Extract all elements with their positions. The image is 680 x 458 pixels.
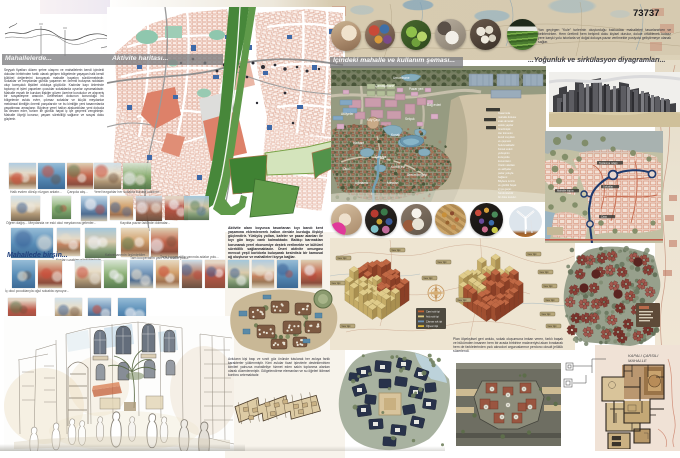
svg-text:Gev tipi: Gev tipi: [546, 298, 555, 302]
svg-text:MAHALLE: MAHALLE: [628, 358, 647, 363]
svg-text:Öğrenci tipi: Öğrenci tipi: [426, 325, 439, 328]
svg-text:Gev tipi: Gev tipi: [392, 248, 401, 252]
svg-text:Sokaklar: Sokaklar: [603, 185, 613, 189]
svg-text:Cami sok tipi: Cami sok tipi: [426, 311, 440, 314]
svg-text:Gev tipi: Gev tipi: [458, 298, 467, 302]
svg-text:Gev tipi: Gev tipi: [542, 312, 551, 316]
svg-text:Gev tipi: Gev tipi: [424, 276, 433, 280]
svg-text:Mahalle kapısı: Mahalle kapısı: [557, 189, 574, 193]
svg-text:Avlu sok tipi: Avlu sok tipi: [426, 316, 439, 319]
svg-text:Gev tipi: Gev tipi: [338, 256, 347, 260]
svg-text:Gev tipi: Gev tipi: [438, 260, 447, 264]
svg-text:Gev tipi: Gev tipi: [540, 270, 549, 274]
svg-text:Çarşı: Çarşı: [601, 215, 607, 219]
svg-text:Gev tipi: Gev tipi: [548, 324, 557, 328]
svg-text:Çıkmaz sok tipi: Çıkmaz sok tipi: [426, 321, 443, 324]
svg-text:Toplanma odağı: Toplanma odağı: [599, 161, 618, 165]
svg-text:Gev tipi: Gev tipi: [528, 252, 537, 256]
svg-text:Gev tipi: Gev tipi: [342, 324, 351, 328]
svg-text:Gev tipi: Gev tipi: [544, 284, 553, 288]
